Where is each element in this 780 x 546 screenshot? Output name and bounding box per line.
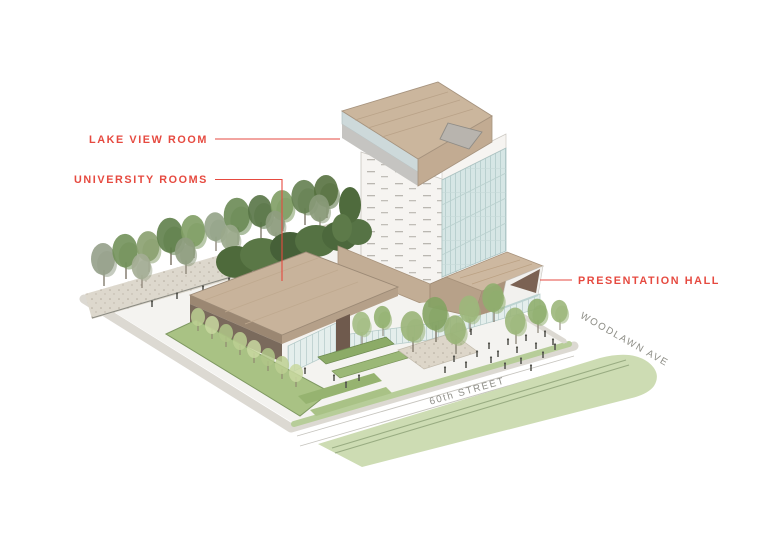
person-figure (530, 364, 532, 371)
plaza-tree (551, 300, 569, 330)
tall-tree (332, 214, 352, 242)
site-axonometric-diagram: 60th STREET WOODLAWN AVE LAKE VIEW ROOM … (0, 0, 780, 546)
diagram-canvas: 60th STREET WOODLAWN AVE LAKE VIEW ROOM … (0, 0, 780, 546)
callout-lake-view-room: LAKE VIEW ROOM (89, 134, 340, 146)
callout-label-lake-view-room: LAKE VIEW ROOM (89, 134, 208, 146)
callout-label-presentation-hall: PRESENTATION HALL (578, 275, 720, 287)
callout-label-university-rooms: UNIVERSITY ROOMS (74, 174, 208, 186)
callout-presentation-hall: PRESENTATION HALL (540, 275, 720, 287)
